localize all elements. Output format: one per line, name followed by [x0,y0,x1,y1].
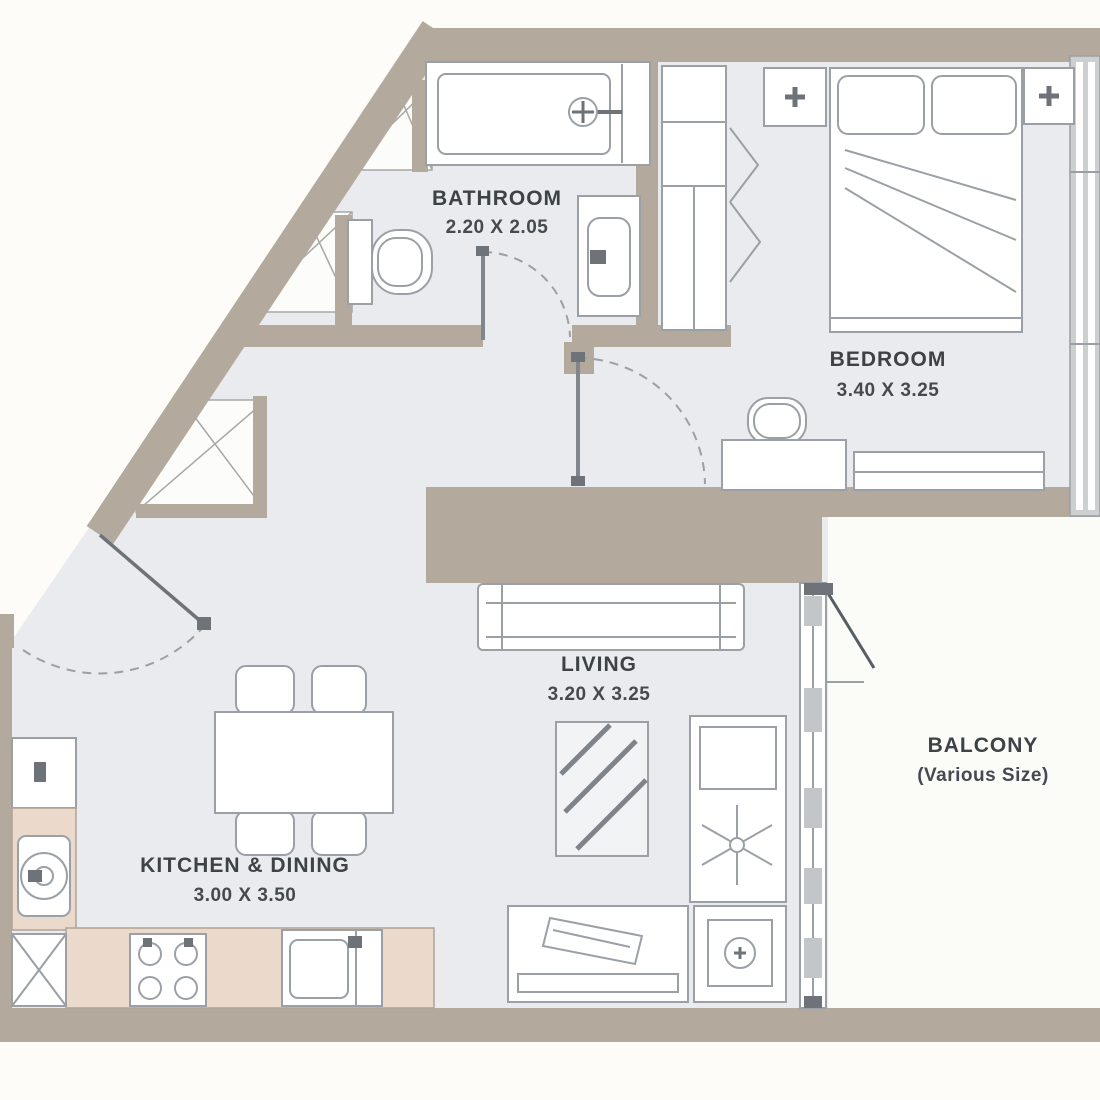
desk-chair [748,398,806,444]
wall-band-center [426,487,822,583]
washing-machine [12,808,76,930]
wall-left-stub [0,614,14,648]
balcony-label: BALCONY [928,734,1039,757]
bedroom-dims: 3.40 X 3.25 [837,380,940,401]
kitchen-dining-label: KITCHEN & DINING [140,854,350,877]
sliding-door-track [800,583,826,1008]
desk [722,440,846,490]
fridge [12,738,76,808]
wall-shaft-bottom [136,504,267,518]
bedroom-console [854,452,1044,490]
living-label: LIVING [561,653,637,676]
sofa [478,584,744,650]
floor-plan: BATHROOM 2.20 X 2.05 BEDROOM 3.40 X 3.25… [0,0,1100,1100]
bedroom-label: BEDROOM [830,348,947,371]
bathroom-dims: 2.20 X 2.05 [446,217,549,238]
tv-console [508,906,688,1002]
dining-table [215,712,393,813]
wall-bathroom-bottom-left [236,325,483,347]
sink-faucet-icon [590,250,606,264]
dining-chair [312,811,366,855]
floor-plan-canvas: BATHROOM 2.20 X 2.05 BEDROOM 3.40 X 3.25… [0,0,1100,1100]
balcony-floor [828,515,1100,1008]
bed [830,68,1022,332]
living-dims: 3.20 X 3.25 [548,684,651,705]
cooktop [130,934,206,1006]
sink-faucet-icon [348,936,362,948]
nightstand-right [1024,68,1074,124]
kitchen-shaft [12,934,66,1006]
wall-top [420,28,1100,62]
wall-balcony-divider [818,487,1100,517]
kitchen-sink [282,930,382,1006]
kitchen-dining-dims: 3.00 X 3.50 [194,885,297,906]
wall-shaft-right [253,396,267,514]
nightstand-left [764,68,826,126]
plant-stand [690,716,786,902]
toilet [348,220,432,304]
rug [556,722,648,856]
balcony-dims: (Various Size) [917,765,1049,786]
bathroom-label: BATHROOM [432,187,562,210]
plant-icon [730,838,744,852]
vanity-sink [578,196,640,316]
wall-left [0,640,12,1008]
bathtub [426,62,650,165]
wall-bottom [0,1008,1100,1042]
dining-chair [236,666,294,714]
media-box [694,906,786,1002]
dining-chair [312,666,366,714]
dining-chair [236,811,294,855]
